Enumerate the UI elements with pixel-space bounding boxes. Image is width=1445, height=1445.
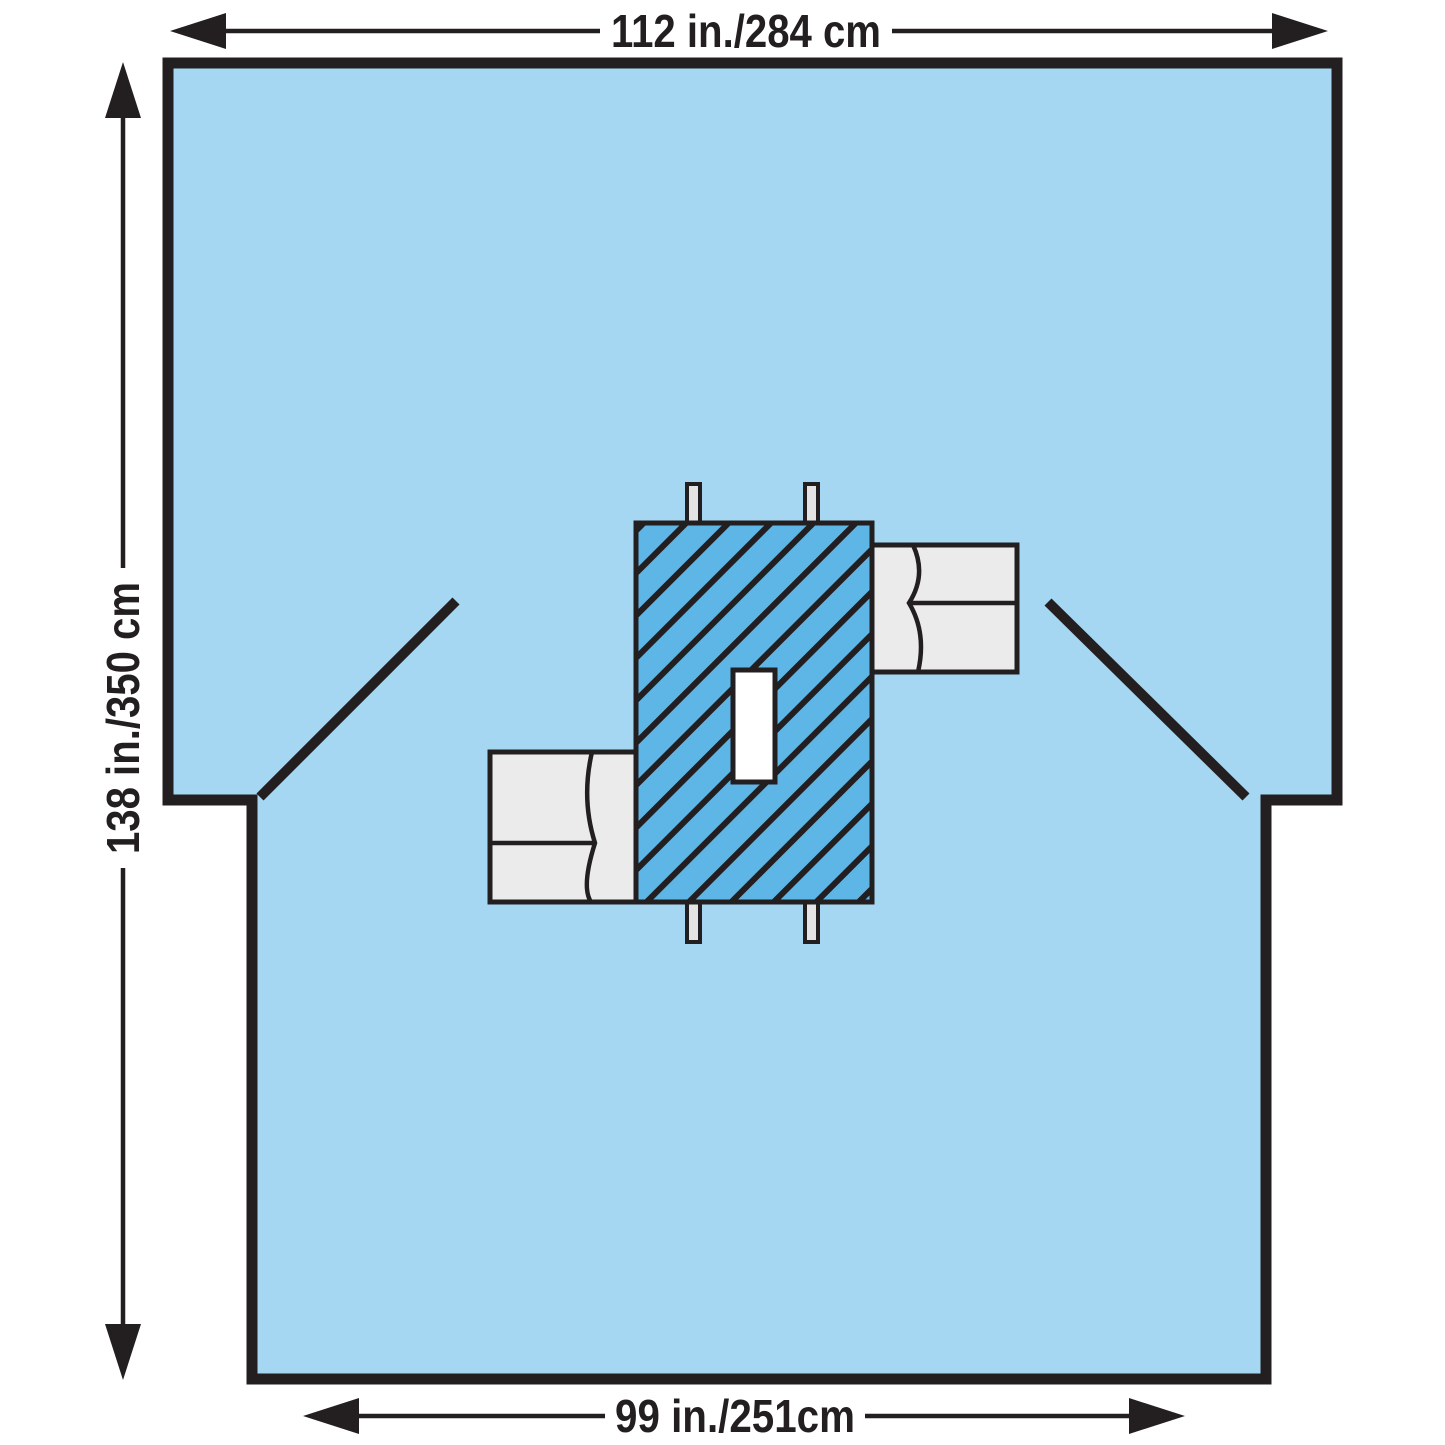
tape-tab-top-right <box>805 484 818 526</box>
tape-tab-top-left <box>687 484 700 526</box>
fenestration-opening <box>733 670 775 782</box>
armboard-cover-right <box>872 545 1017 672</box>
dimension-bottom-label: 99 in./251cm <box>615 1390 855 1442</box>
tape-tab-bottom-left <box>687 899 700 942</box>
armboard-cover-right-body <box>872 545 1017 672</box>
dimension-left-label: 138 in./350 cm <box>97 582 149 854</box>
tape-tab-bottom-right <box>805 899 818 942</box>
dimension-top-label: 112 in./284 cm <box>611 5 881 57</box>
drape-diagram-canvas: 112 in./284 cm 138 in./350 cm 99 in./251… <box>0 0 1445 1445</box>
armboard-cover-left-body <box>490 752 637 902</box>
drape-product-diagram: 112 in./284 cm 138 in./350 cm 99 in./251… <box>0 0 1445 1445</box>
armboard-cover-left <box>490 752 637 902</box>
